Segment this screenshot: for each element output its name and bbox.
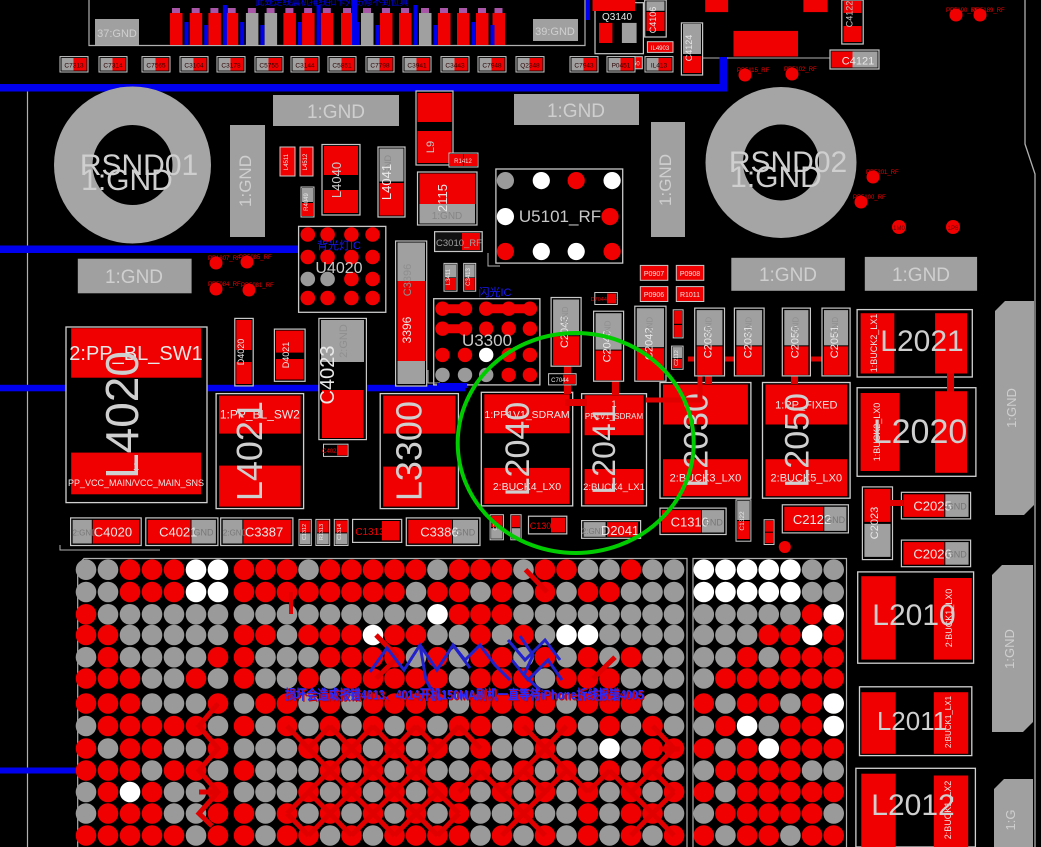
svg-text:R1412: R1412 (454, 159, 472, 165)
svg-text:PP5201_RF: PP5201_RF (866, 170, 899, 176)
svg-text:39:GND: 39:GND (535, 26, 575, 38)
svg-text:L2040: L2040 (499, 402, 537, 497)
svg-text:C3396: C3396 (402, 264, 414, 296)
svg-text:1:GND: 1:GND (892, 265, 950, 286)
svg-text:L2050: L2050 (778, 393, 816, 488)
svg-text:L2010: L2010 (872, 599, 955, 632)
svg-text:GND: GND (947, 549, 968, 559)
svg-text:C4124: C4124 (684, 35, 694, 62)
svg-text:P0451: P0451 (612, 63, 631, 70)
svg-text:1:GND: 1:GND (105, 267, 163, 288)
svg-text:1:GND: 1:GND (759, 265, 817, 286)
svg-text:C2023: C2023 (869, 507, 881, 539)
svg-text:P0908: P0908 (680, 271, 700, 278)
svg-text:R1313: R1313 (319, 524, 325, 540)
svg-text:GND: GND (645, 317, 654, 335)
svg-text:C4121: C4121 (842, 56, 874, 68)
svg-text:PP5084_RF: PP5084_RF (208, 282, 241, 288)
svg-text:C7565: C7565 (146, 63, 166, 70)
svg-text:GND: GND (947, 502, 968, 512)
svg-text:C1313: C1313 (355, 527, 385, 538)
svg-text:U4020: U4020 (315, 260, 362, 277)
svg-text:P0907: P0907 (644, 271, 664, 278)
svg-text:1:GND: 1:GND (1002, 629, 1017, 669)
svg-text:IL413: IL413 (651, 63, 668, 70)
svg-text:C7943: C7943 (574, 63, 594, 70)
svg-text:1:G: 1:G (1003, 810, 1018, 831)
svg-text:此处走线震机排线扣卡外伤修不到位真: 此处走线震机排线扣卡外伤修不到位真 (255, 0, 408, 7)
svg-text:GND: GND (825, 515, 846, 525)
svg-text:R1011: R1011 (680, 292, 700, 299)
svg-text:1M0: 1M0 (893, 226, 905, 232)
svg-text:1:GND: 1:GND (730, 161, 822, 194)
svg-text:D4020: D4020 (236, 339, 246, 366)
svg-text:L2020: L2020 (873, 413, 968, 451)
svg-text:L2011: L2011 (877, 706, 947, 736)
svg-text:C3178: C3178 (221, 63, 241, 70)
svg-text:R4049: R4049 (304, 193, 310, 211)
svg-text:1:GND: 1:GND (656, 154, 675, 206)
svg-text:C4022: C4022 (322, 449, 340, 455)
svg-text:C5851: C5851 (332, 63, 352, 70)
svg-text:C7314: C7314 (103, 63, 123, 70)
svg-text:PP5081_RF: PP5081_RF (241, 283, 274, 289)
svg-text:L3300: L3300 (388, 401, 429, 501)
svg-text:C3010_RF: C3010_RF (436, 238, 482, 249)
svg-text:C7948: C7948 (482, 63, 502, 70)
svg-text:C3386: C3386 (420, 525, 458, 540)
svg-text:L9: L9 (425, 141, 437, 153)
svg-text:PP5189_RF: PP5189_RF (972, 8, 1005, 14)
svg-text:背光灯IC: 背光灯IC (317, 238, 361, 252)
svg-text:L4041: L4041 (379, 164, 394, 200)
svg-text:C4106: C4106 (648, 7, 658, 34)
svg-text:GND: GND (455, 528, 476, 538)
svg-text:PP5102_RF: PP5102_RF (784, 67, 817, 73)
svg-text:C4021: C4021 (159, 525, 197, 540)
svg-text:闪光IC: 闪光IC (479, 285, 512, 299)
svg-text:U5101_RF: U5101_RF (519, 207, 601, 226)
svg-text:PP5085_RF: PP5085_RF (239, 255, 272, 261)
svg-text:1:BUCK2_LX1: 1:BUCK2_LX1 (869, 314, 879, 373)
svg-text:C2112: C2112 (674, 350, 680, 366)
svg-text:1:GND: 1:GND (236, 155, 255, 207)
svg-text:1:GND: 1:GND (81, 164, 173, 197)
svg-text:L2041: L2041 (586, 406, 622, 495)
svg-text:L4512: L4512 (303, 153, 309, 170)
svg-text:2:GND: 2:GND (338, 324, 350, 358)
svg-text:C4020: C4020 (94, 525, 132, 540)
svg-text:C1314: C1314 (337, 524, 343, 540)
svg-text:Q2348: Q2348 (520, 63, 540, 70)
svg-text:D7044_RF: D7044_RF (591, 297, 618, 303)
svg-text:PP5115_RF: PP5115_RF (737, 68, 770, 74)
svg-text:P0906: P0906 (644, 292, 664, 299)
svg-text:C3941: C3941 (407, 63, 427, 70)
svg-text:L2030: L2030 (677, 393, 715, 488)
svg-text:IL4903: IL4903 (651, 46, 670, 52)
svg-text:37:GND: 37:GND (97, 28, 137, 40)
svg-text:GND: GND (744, 317, 753, 335)
svg-text:C5755: C5755 (259, 63, 279, 70)
svg-text:PP1807_RF: PP1807_RF (208, 256, 241, 262)
svg-text:GND: GND (791, 317, 800, 335)
svg-text:L2012: L2012 (871, 789, 954, 822)
svg-text:GND: GND (831, 317, 840, 335)
svg-text:C7798: C7798 (370, 63, 390, 70)
svg-text:U3300: U3300 (462, 331, 512, 350)
svg-text:C3104: C3104 (184, 63, 204, 70)
svg-text:1P8: 1P8 (948, 226, 959, 232)
svg-text:C7313: C7313 (64, 63, 84, 70)
svg-text:C1312: C1312 (302, 524, 308, 540)
svg-text:C3144: C3144 (295, 63, 315, 70)
svg-text:C7044: C7044 (551, 378, 569, 384)
svg-text:L2021: L2021 (880, 325, 963, 358)
svg-text:C3387: C3387 (245, 525, 283, 540)
svg-text:GND: GND (705, 317, 714, 335)
svg-text:损坏会造成报错4013、4014开机150MA刷机一直等待i: 损坏会造成报错4013、4014开机150MA刷机一直等待iPhone拆线报错4… (285, 686, 644, 703)
svg-text:1:GND: 1:GND (307, 102, 365, 123)
svg-text:L4021: L4021 (229, 401, 270, 501)
svg-text:2115: 2115 (435, 184, 450, 212)
svg-text:D2041: D2041 (601, 523, 639, 538)
svg-text:GND: GND (703, 517, 724, 527)
svg-text:L4511: L4511 (284, 153, 290, 170)
svg-text:C4122: C4122 (845, 1, 855, 28)
svg-text:C4023: C4023 (317, 346, 339, 405)
svg-text:PP5100_RF: PP5100_RF (853, 195, 886, 201)
svg-text:GND: GND (561, 306, 570, 324)
svg-text:C3413: C3413 (466, 268, 472, 286)
svg-text:C1301: C1301 (530, 521, 557, 531)
svg-text:3396: 3396 (400, 316, 414, 343)
svg-text:L4020: L4020 (96, 351, 148, 479)
svg-text:1:GND: 1:GND (547, 101, 605, 122)
svg-text:1:GND: 1:GND (432, 211, 463, 222)
svg-text:C3443: C3443 (445, 63, 465, 70)
svg-text:L3411: L3411 (446, 268, 452, 285)
svg-text:Q3140: Q3140 (602, 12, 632, 23)
svg-text:D4021: D4021 (281, 342, 291, 369)
svg-text:GND: GND (193, 528, 214, 538)
svg-text:C1322: C1322 (739, 511, 746, 531)
svg-text:1:GND: 1:GND (1004, 388, 1019, 428)
svg-text:L4040: L4040 (329, 162, 344, 198)
